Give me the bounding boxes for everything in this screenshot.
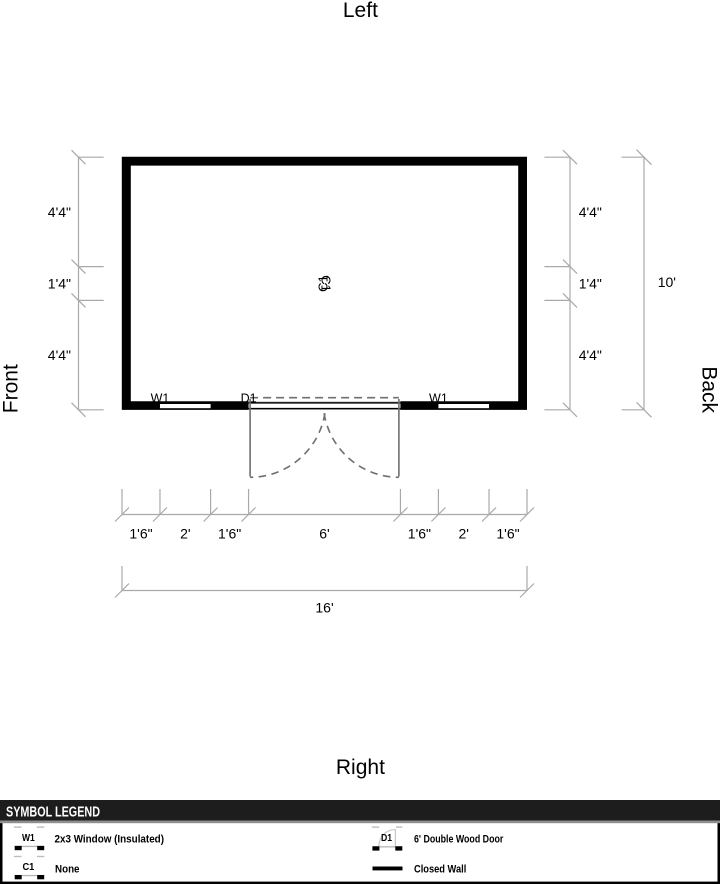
svg-text:Back: Back [697,366,720,413]
svg-text:1'6": 1'6" [129,526,152,542]
svg-text:6': 6' [319,526,329,542]
svg-text:4'4": 4'4" [48,347,71,363]
svg-text:C1: C1 [316,275,331,292]
svg-text:Front: Front [0,364,22,413]
svg-text:10': 10' [658,274,676,290]
svg-text:1'6": 1'6" [218,526,241,542]
svg-text:2x3 Window (Insulated): 2x3 Window (Insulated) [55,833,165,845]
svg-text:1'4": 1'4" [579,276,602,292]
svg-text:W1: W1 [151,392,170,406]
svg-text:2': 2' [458,526,468,542]
svg-text:Right: Right [336,756,385,779]
svg-text:6' Double Wood Door: 6' Double Wood Door [414,833,504,845]
svg-text:4'4": 4'4" [579,347,602,363]
svg-text:2': 2' [180,526,190,542]
svg-text:W1: W1 [429,392,448,406]
svg-text:None: None [55,863,80,875]
svg-text:C1: C1 [22,861,34,873]
svg-text:D1: D1 [241,392,257,406]
svg-text:W1: W1 [22,832,35,844]
svg-text:1'6": 1'6" [408,526,431,542]
svg-text:1'6": 1'6" [496,526,519,542]
svg-text:4'4": 4'4" [48,204,71,220]
svg-text:Left: Left [343,0,378,22]
svg-text:SYMBOL LEGEND: SYMBOL LEGEND [6,805,100,821]
svg-text:4'4": 4'4" [579,204,602,220]
svg-text:1'4": 1'4" [48,276,71,292]
svg-text:Closed Wall: Closed Wall [414,863,466,875]
svg-text:D1: D1 [381,832,392,844]
svg-text:16': 16' [315,600,333,616]
